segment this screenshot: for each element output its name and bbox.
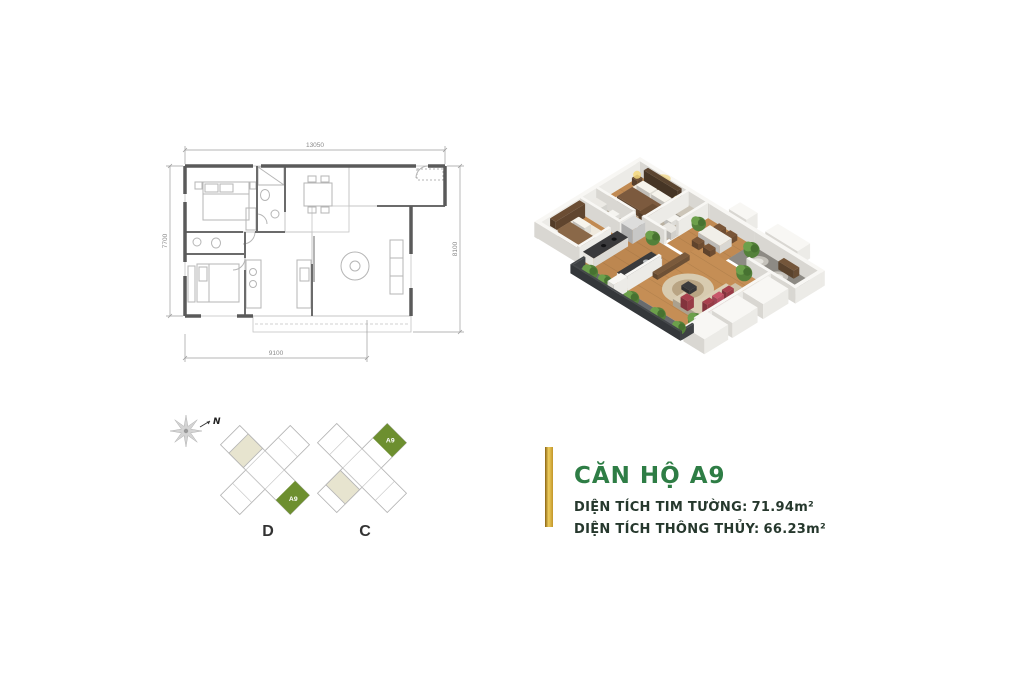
dimension-label-left: 7700 [162, 233, 169, 248]
site-diagram: N A9 D [160, 400, 460, 545]
gold-accent-bar [545, 447, 553, 527]
dimension-label-right: 8100 [452, 241, 459, 256]
area-label: DIỆN TÍCH TIM TƯỜNG: [574, 500, 748, 515]
floorplan-3d [518, 132, 850, 386]
tower-d-unit-label: A9 [289, 496, 298, 503]
brochure-page: 13050 7700 8100 9100 N [0, 0, 1030, 680]
unit-info-panel: CĂN HỘ A9 DIỆN TÍCH TIM TƯỜNG:71.94m² DI… [545, 445, 875, 543]
dimension-label-top: 13050 [306, 142, 324, 149]
tower-c-diagram: A9 C [292, 400, 431, 540]
area-value: 66.23m² [764, 522, 826, 537]
tower-c-label: C [359, 523, 371, 540]
compass-north-label: N [213, 417, 221, 427]
compass-icon: N [170, 415, 221, 447]
area-value: 71.94m² [752, 500, 814, 515]
area-row-thong-thuy: DIỆN TÍCH THÔNG THỦY:66.23m² [574, 521, 875, 539]
area-label: DIỆN TÍCH THÔNG THỦY: [574, 522, 760, 537]
floorplan-2d: 13050 7700 8100 9100 [158, 136, 478, 381]
unit-title: CĂN HỘ A9 [574, 463, 875, 489]
floorplan-3d-scene [534, 157, 825, 354]
area-row-tim-tuong: DIỆN TÍCH TIM TƯỜNG:71.94m² [574, 499, 875, 517]
dimension-label-bottom: 9100 [269, 350, 284, 357]
tower-d-label: D [262, 523, 274, 540]
tower-c-unit-label: A9 [386, 437, 395, 444]
furniture-linework [188, 166, 443, 308]
